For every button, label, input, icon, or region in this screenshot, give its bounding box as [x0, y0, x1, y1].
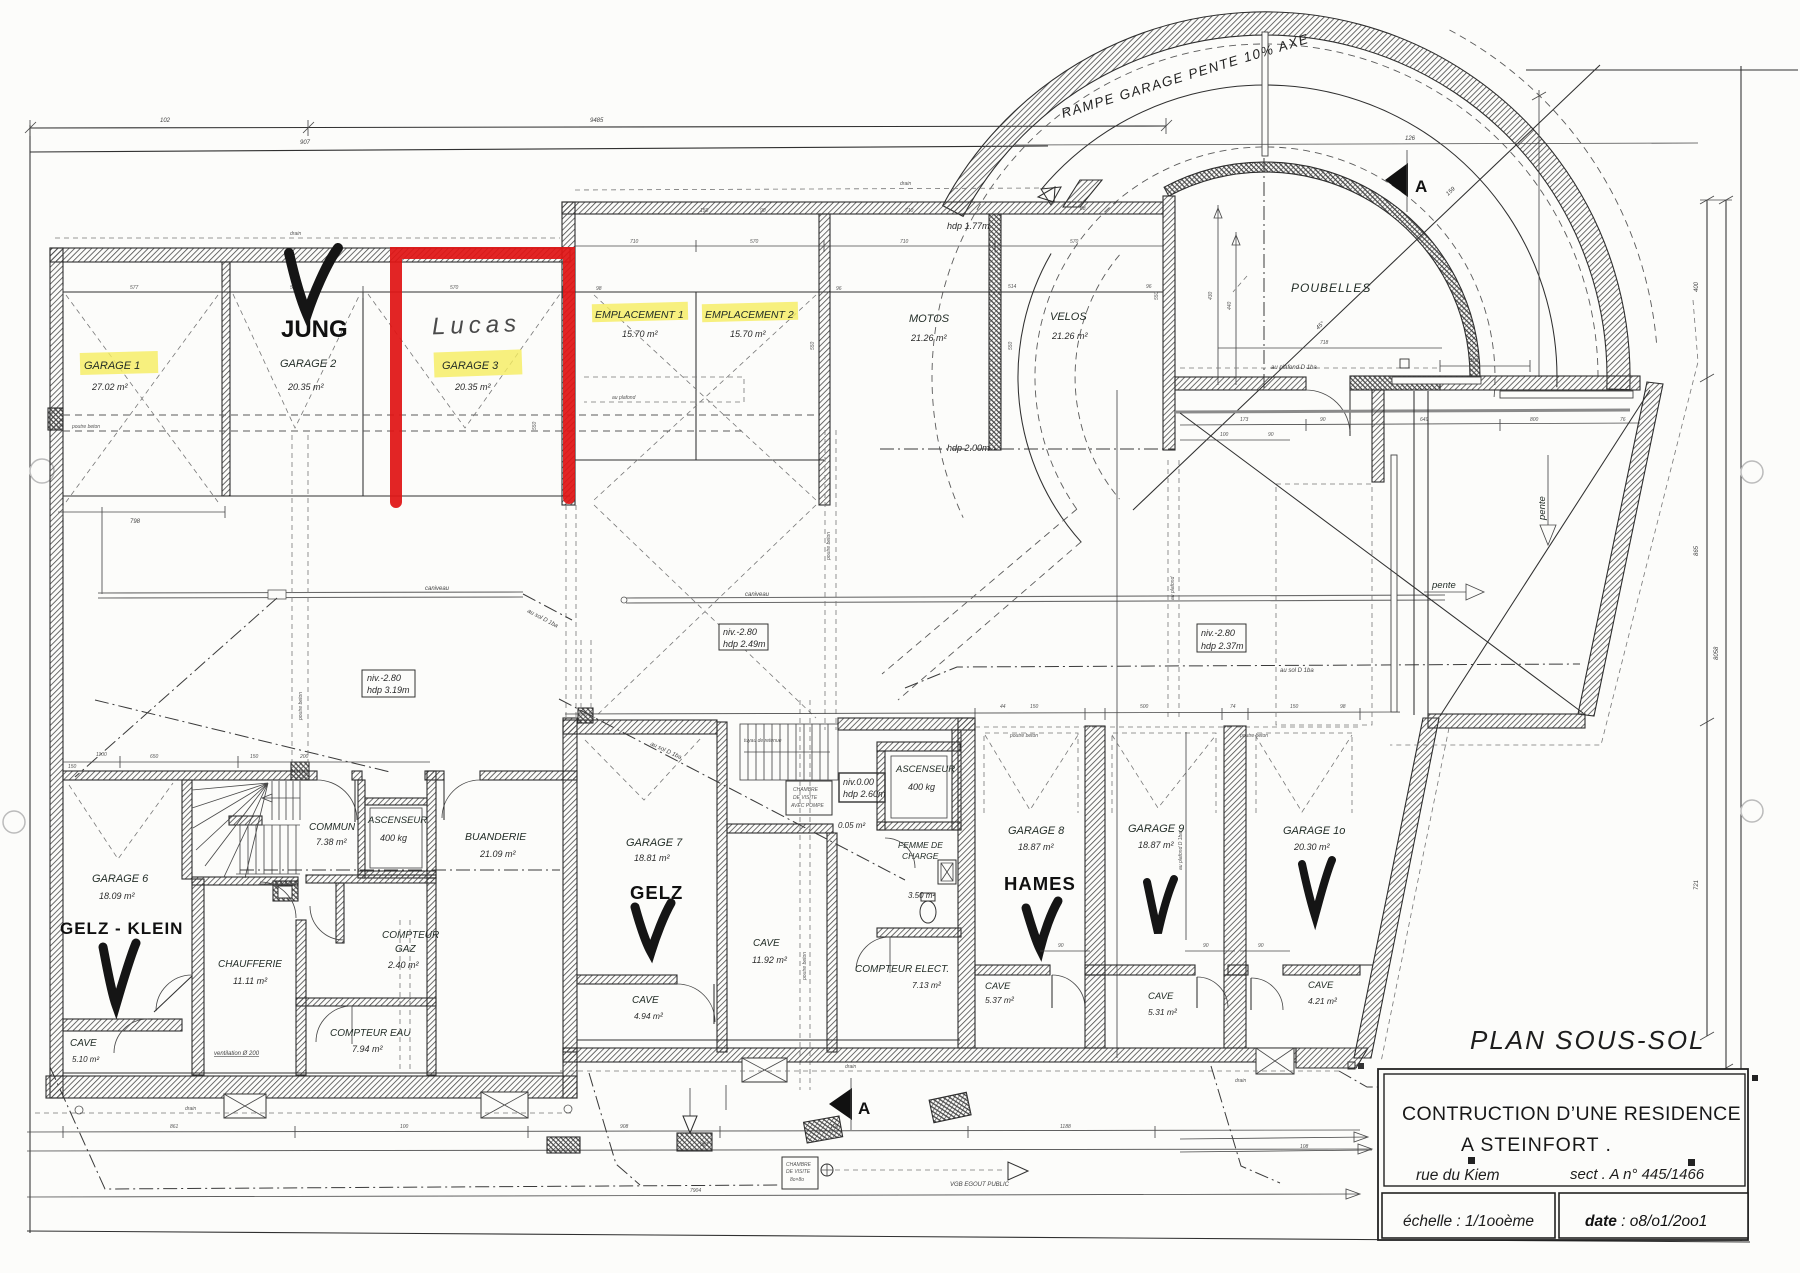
- svg-text:98: 98: [596, 286, 602, 292]
- svg-text:sect . A n° 445/1466: sect . A n° 445/1466: [1570, 1166, 1705, 1183]
- svg-text:570: 570: [450, 285, 459, 291]
- svg-text:7.94 m²: 7.94 m²: [352, 1044, 384, 1054]
- svg-text:861: 861: [170, 1124, 179, 1130]
- svg-text:COMMUN: COMMUN: [309, 822, 356, 833]
- svg-text:11.11 m²: 11.11 m²: [233, 976, 268, 986]
- svg-text:18.81 m²: 18.81 m²: [634, 853, 671, 863]
- svg-text:ventilation Ø 200: ventilation Ø 200: [214, 1051, 260, 1057]
- svg-text:90: 90: [760, 208, 766, 214]
- svg-text:poutre beton: poutre beton: [298, 692, 304, 721]
- svg-text:21.26 m²: 21.26 m²: [910, 333, 948, 343]
- svg-text:4.21 m²: 4.21 m²: [1308, 996, 1338, 1006]
- svg-text:908: 908: [620, 1124, 629, 1130]
- svg-text:niv.-2.80: niv.-2.80: [723, 627, 757, 637]
- svg-text:niv.0.00: niv.0.00: [843, 777, 874, 787]
- svg-text:650: 650: [150, 754, 159, 760]
- svg-text:au sol D 1ba: au sol D 1ba: [1280, 668, 1314, 674]
- svg-text:GELZ - KLEIN: GELZ - KLEIN: [60, 919, 183, 938]
- svg-text:150: 150: [250, 754, 259, 760]
- svg-text:CAVE: CAVE: [753, 938, 780, 949]
- svg-text:DE VISITE: DE VISITE: [793, 795, 818, 801]
- svg-text:150: 150: [700, 208, 709, 214]
- svg-text:GAZ: GAZ: [395, 944, 416, 955]
- svg-text:pente: pente: [1537, 496, 1548, 521]
- svg-text:date : o8/o1/2oo1: date : o8/o1/2oo1: [1585, 1213, 1707, 1230]
- svg-text:EMPLACEMENT 1: EMPLACEMENT 1: [595, 309, 684, 321]
- svg-text:CONTRUCTION D’UNE RESIDENCE: CONTRUCTION D’UNE RESIDENCE: [1402, 1103, 1741, 1125]
- svg-text:CHARGE: CHARGE: [902, 851, 939, 861]
- svg-text:CAVE: CAVE: [70, 1038, 97, 1049]
- svg-text:GARAGE 1: GARAGE 1: [84, 360, 140, 372]
- svg-text:drain: drain: [1235, 1078, 1246, 1084]
- svg-text:poutre beton: poutre beton: [71, 424, 100, 430]
- svg-text:649: 649: [1420, 417, 1429, 423]
- svg-text:CAVE: CAVE: [1308, 980, 1334, 991]
- svg-text:poutre beton: poutre beton: [1009, 733, 1038, 739]
- svg-text:drain: drain: [900, 181, 911, 187]
- svg-text:CAVE: CAVE: [632, 995, 659, 1006]
- svg-text:577: 577: [130, 285, 139, 291]
- svg-text:710: 710: [630, 239, 639, 245]
- svg-text:150: 150: [1030, 704, 1039, 710]
- svg-text:CHAMBRE: CHAMBRE: [793, 787, 819, 793]
- svg-text:7904: 7904: [690, 1188, 701, 1194]
- svg-text:CAVE: CAVE: [985, 981, 1011, 992]
- svg-text:100: 100: [1470, 358, 1479, 364]
- svg-text:VELOS: VELOS: [1050, 311, 1087, 323]
- svg-text:GARAGE 3: GARAGE 3: [442, 360, 499, 372]
- svg-text:GARAGE 7: GARAGE 7: [626, 837, 683, 849]
- svg-text:drain: drain: [845, 1064, 856, 1070]
- svg-text:GARAGE 1o: GARAGE 1o: [1283, 825, 1345, 837]
- svg-text:8058: 8058: [1714, 646, 1720, 660]
- svg-text:GARAGE 2: GARAGE 2: [280, 358, 336, 370]
- svg-text:AVEC POMPE: AVEC POMPE: [790, 803, 824, 809]
- svg-text:400 kg: 400 kg: [908, 782, 935, 792]
- svg-text:GARAGE 6: GARAGE 6: [92, 873, 149, 885]
- svg-text:20.30 m²: 20.30 m²: [1293, 842, 1331, 852]
- svg-text:20.35 m²: 20.35 m²: [287, 382, 325, 392]
- svg-text:caniveau: caniveau: [425, 586, 450, 592]
- svg-text:88: 88: [1080, 206, 1086, 212]
- svg-text:COMPTEUR ELECT.: COMPTEUR ELECT.: [855, 964, 949, 975]
- svg-text:au plafond: au plafond: [1170, 576, 1176, 600]
- svg-text:21.09 m²: 21.09 m²: [479, 849, 517, 859]
- svg-text:44: 44: [1000, 704, 1006, 710]
- svg-text:A STEINFORT .: A STEINFORT .: [1461, 1134, 1612, 1156]
- svg-text:200: 200: [299, 754, 309, 760]
- svg-text:18.87 m²: 18.87 m²: [1018, 842, 1055, 852]
- svg-text:1188: 1188: [1060, 1124, 1071, 1130]
- svg-text:15.70 m²: 15.70 m²: [622, 329, 659, 339]
- svg-text:PLAN SOUS-SOL: PLAN SOUS-SOL: [1470, 1025, 1706, 1055]
- svg-text:550: 550: [1154, 291, 1160, 300]
- svg-text:hdp 2.37m: hdp 2.37m: [1201, 641, 1244, 651]
- svg-text:Lucas: Lucas: [432, 310, 522, 340]
- svg-text:poutre beton: poutre beton: [802, 952, 808, 981]
- svg-text:76: 76: [1620, 417, 1626, 423]
- svg-text:2.40 m²: 2.40 m²: [387, 960, 420, 970]
- svg-text:au plafond D 1ba: au plafond D 1ba: [1178, 832, 1184, 870]
- svg-text:865: 865: [1694, 545, 1700, 556]
- svg-text:GARAGE 8: GARAGE 8: [1008, 825, 1065, 837]
- svg-text:A: A: [1415, 177, 1427, 196]
- svg-text:drain: drain: [185, 1106, 196, 1112]
- svg-text:hdp 2.49m: hdp 2.49m: [723, 639, 766, 649]
- svg-text:CAVE: CAVE: [1148, 991, 1174, 1002]
- svg-text:100: 100: [1220, 432, 1229, 438]
- svg-text:20.35 m²: 20.35 m²: [454, 382, 492, 392]
- svg-text:18.87 m²: 18.87 m²: [1138, 840, 1175, 850]
- svg-text:18.09 m²: 18.09 m²: [99, 891, 136, 901]
- svg-text:440: 440: [1227, 301, 1233, 310]
- svg-text:COMPTEUR EAU: COMPTEUR EAU: [330, 1028, 411, 1039]
- svg-text:niv.-2.80: niv.-2.80: [1201, 628, 1235, 638]
- svg-text:7.38 m²: 7.38 m²: [316, 837, 348, 847]
- svg-text:90: 90: [1203, 943, 1209, 949]
- svg-text:74: 74: [1230, 704, 1236, 710]
- svg-text:échelle : 1/1ooème: échelle : 1/1ooème: [1403, 1213, 1534, 1230]
- svg-text:150: 150: [1290, 704, 1299, 710]
- svg-text:550: 550: [1008, 341, 1014, 350]
- svg-text:907: 907: [300, 140, 311, 146]
- svg-text:au plafond D 1ba: au plafond D 1ba: [1271, 365, 1317, 371]
- svg-text:CHAMBRE: CHAMBRE: [786, 1162, 812, 1168]
- svg-text:400: 400: [1694, 281, 1700, 292]
- svg-text:710: 710: [905, 208, 914, 214]
- svg-text:570: 570: [1070, 239, 1079, 245]
- svg-text:500: 500: [1140, 704, 1149, 710]
- svg-text:hdp 1.77m: hdp 1.77m: [947, 221, 990, 231]
- svg-text:126: 126: [1405, 136, 1416, 142]
- svg-text:5.37 m²: 5.37 m²: [985, 995, 1015, 1005]
- svg-text:90: 90: [1058, 943, 1064, 949]
- svg-text:798: 798: [130, 519, 141, 525]
- svg-text:27.02 m²: 27.02 m²: [91, 382, 129, 392]
- svg-text:100: 100: [400, 1124, 409, 1130]
- svg-text:721: 721: [1694, 880, 1700, 890]
- svg-text:90: 90: [1258, 943, 1264, 949]
- svg-text:rue du Kiem: rue du Kiem: [1416, 1167, 1500, 1184]
- svg-text:90: 90: [1320, 417, 1326, 423]
- svg-text:EMPLACEMENT 2: EMPLACEMENT 2: [705, 309, 794, 321]
- svg-text:98: 98: [1340, 704, 1346, 710]
- svg-text:BUANDERIE: BUANDERIE: [465, 831, 527, 843]
- svg-text:4.94 m²: 4.94 m²: [634, 1011, 664, 1021]
- svg-text:15.70 m²: 15.70 m²: [730, 329, 767, 339]
- svg-text:8o×8o: 8o×8o: [790, 1177, 804, 1183]
- svg-text:430: 430: [1208, 291, 1214, 300]
- svg-text:718: 718: [1320, 340, 1329, 346]
- svg-text:96: 96: [836, 286, 842, 292]
- svg-text:570: 570: [750, 239, 759, 245]
- svg-text:11.92 m²: 11.92 m²: [752, 955, 788, 965]
- svg-text:102: 102: [160, 118, 171, 124]
- svg-text:173: 173: [1240, 417, 1249, 423]
- svg-text:3.50 m²: 3.50 m²: [908, 891, 935, 900]
- svg-text:caniveau: caniveau: [745, 592, 770, 598]
- svg-text:108: 108: [1300, 1144, 1309, 1150]
- svg-text:800: 800: [1530, 417, 1539, 423]
- svg-text:ASCENSEUR: ASCENSEUR: [895, 764, 955, 775]
- svg-text:VGB EGOUT PUBLIC: VGB EGOUT PUBLIC: [950, 1182, 1010, 1188]
- svg-text:CHAUFFERIE: CHAUFFERIE: [218, 959, 282, 970]
- svg-text:JUNG: JUNG: [281, 316, 348, 343]
- svg-text:150: 150: [68, 764, 77, 770]
- svg-text:HAMES: HAMES: [1004, 873, 1076, 894]
- svg-text:POUBELLES: POUBELLES: [1291, 281, 1371, 295]
- svg-text:DE VISITE: DE VISITE: [786, 1169, 811, 1175]
- svg-text:550: 550: [532, 421, 538, 430]
- svg-text:9485: 9485: [590, 118, 604, 124]
- svg-text:0.05 m²: 0.05 m²: [838, 821, 865, 830]
- svg-text:au plafond: au plafond: [612, 395, 636, 401]
- svg-text:5.10 m²: 5.10 m²: [72, 1055, 99, 1064]
- svg-text:A: A: [858, 1099, 870, 1118]
- svg-text:514: 514: [1008, 284, 1017, 290]
- svg-text:MOTOS: MOTOS: [909, 313, 950, 325]
- svg-text:GARAGE 9: GARAGE 9: [1128, 823, 1184, 835]
- svg-text:90: 90: [1268, 432, 1274, 438]
- svg-text:400 kg: 400 kg: [380, 833, 407, 843]
- svg-text:1100: 1100: [96, 752, 107, 758]
- svg-text:7.13 m²: 7.13 m²: [912, 980, 942, 990]
- svg-text:pente: pente: [1431, 580, 1456, 591]
- svg-text:550: 550: [810, 341, 816, 350]
- svg-text:710: 710: [900, 239, 909, 245]
- svg-text:hdp 2.00m: hdp 2.00m: [947, 443, 990, 453]
- svg-text:hdp 3.19m: hdp 3.19m: [367, 685, 410, 695]
- svg-text:poutre beton: poutre beton: [826, 532, 832, 561]
- svg-text:96: 96: [1146, 284, 1152, 290]
- svg-text:5.31 m²: 5.31 m²: [1148, 1007, 1178, 1017]
- svg-text:tuyau de retenue: tuyau de retenue: [744, 738, 782, 744]
- svg-text:ASCENSEUR: ASCENSEUR: [367, 815, 427, 826]
- svg-text:niv.-2.80: niv.-2.80: [367, 673, 401, 683]
- svg-text:GELZ: GELZ: [630, 882, 683, 903]
- svg-text:drain: drain: [290, 231, 301, 237]
- svg-text:21.26 m²: 21.26 m²: [1051, 331, 1089, 341]
